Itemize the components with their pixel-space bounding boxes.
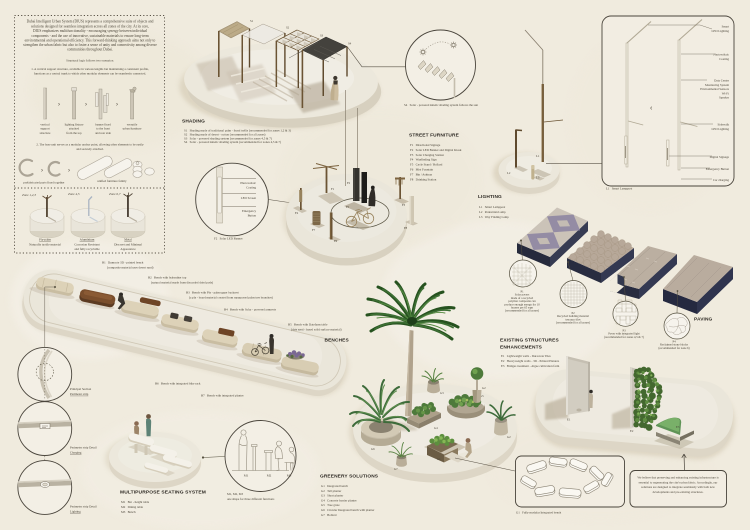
svg-text:F2: F2	[347, 181, 351, 185]
svg-text:F4 Wayfinding Sign: F4 Wayfinding Sign	[410, 158, 437, 162]
svg-text:LED Lighting: LED Lighting	[712, 127, 730, 131]
svg-text:ENHANCEMENTS: ENHANCEMENTS	[500, 345, 543, 351]
svg-text:G7 Bollard: G7 Bollard	[321, 513, 337, 517]
svg-text:one shape for three different: one shape for three different functions	[227, 497, 275, 501]
svg-text:F8: F8	[404, 226, 408, 230]
svg-text:Coating: Coating	[246, 185, 256, 189]
svg-text:Naturally tactile material: Naturally tactile material	[29, 242, 61, 246]
svg-text:prefabricated parts fixed toge: prefabricated parts fixed together	[23, 181, 64, 185]
svg-text:E2 Heavyweight walls - 3D -: E2 Heavyweight walls - 3D - Printed Plan…	[501, 359, 560, 363]
svg-text:Structural logic follows two s: Structural logic follows two scenarios:	[66, 59, 114, 63]
svg-text:and fully recyclable: and fully recyclable	[74, 247, 100, 251]
svg-text:G1 Fully modular Integrated: G1 Fully modular Integrated bench	[516, 511, 562, 515]
svg-text:(date seed - based solid surfa: (date seed - based solid surface materia…	[291, 327, 342, 331]
svg-text:G6 Circular Integrated bench: G6 Circular Integrated bench with plante…	[321, 508, 374, 512]
svg-text:S4: S4	[348, 42, 352, 46]
svg-text:F1 Directional Signage: F1 Directional Signage	[410, 143, 441, 147]
svg-text:BENCHES: BENCHES	[325, 338, 350, 344]
svg-text:DIUS emphasizes multifunctiona: DIUS emphasizes multifunctionality - enc…	[33, 29, 147, 33]
svg-text:Coating: Coating	[719, 57, 729, 61]
svg-text:(composite material uses deser: (composite material uses desert sand)	[107, 265, 153, 269]
svg-text:Aluminium: Aluminium	[80, 238, 95, 242]
svg-text:Appearance: Appearance	[120, 247, 136, 251]
svg-text:(natural material made from di: (natural material made from discarded dr…	[151, 280, 213, 284]
svg-text:G4 Concrete barrier planter: G4 Concrete barrier planter	[321, 498, 357, 502]
svg-text:E2: E2	[630, 429, 634, 433]
svg-text:G3: G3	[440, 391, 444, 395]
svg-text:›: ›	[41, 168, 43, 174]
svg-text:M1 Bar - height table: M1 Bar - height table	[121, 500, 150, 504]
svg-text:and securely attached.: and securely attached.	[76, 147, 104, 151]
svg-text:STREET FURNITURE: STREET FURNITURE	[409, 133, 460, 139]
svg-text:Car charging: Car charging	[713, 178, 729, 182]
svg-text:Lighting: Lighting	[70, 509, 81, 513]
svg-text:B3 Bench with Ply - palm upp: B3 Bench with Ply - palm upper backrest	[186, 291, 239, 295]
svg-text:›: ›	[116, 102, 118, 108]
svg-text:urban furniture: urban furniture	[123, 127, 142, 131]
svg-text:G5 Tree grate: G5 Tree grate	[321, 503, 340, 507]
svg-text:S4 Solar - powered kinetic s: S4 Solar - powered kinetic shading syste…	[404, 103, 478, 107]
svg-text:M3 Bench: M3 Bench	[121, 510, 136, 514]
svg-text:›: ›	[58, 102, 60, 108]
svg-text:from the top: from the top	[66, 131, 82, 135]
svg-text:G1: G1	[437, 457, 441, 461]
svg-text:B2 Bench with leabeather top: B2 Bench with leabeather top	[148, 276, 187, 280]
svg-text:Metal: Metal	[124, 238, 132, 242]
svg-text:Perimeter strip: Perimeter strip	[70, 392, 89, 396]
svg-text:L3 Way Finding Lamp: L3 Way Finding Lamp	[479, 215, 509, 219]
svg-text:F2 Solar LED Banner and Digi: F2 Solar LED Banner and Digital Kiosk	[410, 148, 462, 152]
svg-text:E3 Bridges treatment - Algae: E3 Bridges treatment - Algae cultivation…	[501, 364, 560, 368]
svg-text:Perimeter strip Detail: Perimeter strip Detail	[70, 446, 97, 450]
svg-text:L1: L1	[536, 154, 540, 158]
svg-text:developments and pre-existing: developments and pre-existing structures…	[653, 490, 704, 494]
svg-text:B7 Bench with integrated pla: B7 Bench with integrated planter	[201, 394, 244, 398]
svg-text:G1 Integrated bench: G1 Integrated bench	[321, 484, 348, 488]
svg-text:F7: F7	[312, 228, 316, 232]
svg-text:F2 Solar LED Banner: F2 Solar LED Banner	[214, 237, 243, 241]
svg-text:communities throughout Dubai.: communities throughout Dubai.	[67, 48, 113, 52]
svg-text:S3: S3	[320, 34, 324, 38]
svg-text:L1 Smart Lamppost: L1 Smart Lamppost	[479, 205, 505, 209]
svg-text:L2 Pedestrian Lamp: L2 Pedestrian Lamp	[479, 210, 506, 214]
svg-text:Corrosion Resistant: Corrosion Resistant	[74, 242, 99, 246]
svg-text:unified furniture family: unified furniture family	[97, 179, 127, 183]
svg-text:PAVING: PAVING	[694, 317, 713, 323]
svg-text:F5 Cycle Stand / Bollard: F5 Cycle Stand / Bollard	[410, 163, 443, 167]
svg-text:B5 Bench with Datefarm table: B5 Bench with Datefarm table	[288, 323, 328, 327]
svg-text:LED Screen: LED Screen	[241, 196, 257, 200]
svg-text:Speaker: Speaker	[719, 96, 729, 100]
svg-text:G7: G7	[394, 467, 398, 471]
svg-text:F3 Solar Charging Station: F3 Solar Charging Station	[410, 153, 444, 157]
svg-text:M1: M1	[244, 474, 249, 478]
svg-text:solutions are designed to inte: solutions are designed to integrate seam…	[641, 485, 716, 489]
svg-text:structure: structure	[40, 131, 51, 135]
svg-text:Dubai Intelligent Urban System: Dubai Intelligent Urban System (DIUS) re…	[27, 20, 154, 24]
svg-text:We believe that preserving and: We believe that preserving and enhancing…	[637, 476, 719, 480]
svg-text:F6: F6	[334, 239, 338, 243]
svg-text:functions as a central trunk t: functions as a central trunk to which ot…	[34, 72, 146, 76]
svg-text:and rear side: and rear side	[95, 131, 111, 135]
svg-text:M3: M3	[287, 474, 292, 478]
svg-text:F5: F5	[346, 205, 350, 209]
svg-text:Ply-palm: Ply-palm	[39, 238, 51, 242]
svg-text:Charging: Charging	[70, 450, 82, 454]
svg-text:F8 Drinking Station: F8 Drinking Station	[410, 177, 437, 181]
svg-text:B4 Bench with Solar - powere: B4 Bench with Solar - powered armrests	[224, 308, 277, 312]
svg-text:LED Lighting: LED Lighting	[712, 29, 730, 33]
svg-text:S1: S1	[250, 19, 254, 23]
svg-text:G6: G6	[371, 447, 375, 451]
svg-text:E1: E1	[567, 418, 571, 422]
svg-text:(a ply - board material create: (a ply - board material created from rep…	[189, 295, 273, 299]
svg-text:›: ›	[68, 168, 70, 174]
svg-text:Digital Signage: Digital Signage	[710, 155, 730, 159]
svg-text:F3: F3	[402, 203, 406, 207]
svg-text:GREENERY SOLUTIONS: GREENERY SOLUTIONS	[320, 474, 379, 480]
svg-text:F6 Mist Fountain: F6 Mist Fountain	[410, 168, 433, 172]
svg-text:G4: G4	[434, 426, 438, 430]
svg-text:Principal Section: Principal Section	[70, 387, 92, 391]
svg-text:(recommended for all zones): (recommended for all zones)	[505, 309, 539, 313]
svg-text:F4: F4	[295, 211, 299, 215]
svg-text:B6 Bench with integrated bik: B6 Bench with integrated bike rack	[155, 382, 201, 386]
svg-text:Emergency Button: Emergency Button	[706, 167, 730, 171]
svg-text:F1: F1	[331, 187, 335, 191]
svg-text:G2: G2	[482, 386, 486, 390]
svg-text:S2: S2	[286, 26, 290, 30]
svg-text:M2: M2	[267, 474, 272, 478]
svg-text:L2: L2	[507, 171, 511, 175]
svg-text:strengthen the urban fabric bu: strengthen the urban fabric but also to …	[23, 43, 157, 47]
svg-text:E3: E3	[676, 425, 680, 429]
svg-text:EXISTING STRUCTURES: EXISTING STRUCTURES	[500, 338, 559, 344]
svg-text:F7 Bin / Ashtray: F7 Bin / Ashtray	[410, 172, 433, 176]
svg-text:Discreet and Minimal: Discreet and Minimal	[114, 242, 142, 246]
svg-text:M2 Dining table: M2 Dining table	[121, 505, 144, 509]
svg-text:SHADING: SHADING	[182, 119, 205, 125]
svg-text:›: ›	[85, 102, 87, 108]
svg-text:L3: L3	[536, 176, 540, 180]
svg-text:MULTIPURPOSE SEATING SYSTEM: MULTIPURPOSE SEATING SYSTEM	[120, 490, 206, 496]
svg-text:LIGHTING: LIGHTING	[478, 194, 502, 200]
svg-text:Button: Button	[248, 213, 257, 217]
svg-text:G2: G2	[507, 435, 511, 439]
svg-text:environmental and operational: environmental and operational efficiency…	[25, 38, 156, 42]
svg-text:L1 Smart Lamppost: L1 Smart Lamppost	[606, 187, 632, 191]
svg-text:E1 Lightweight walls - Durac: E1 Lightweight walls - Duracrete Tiles	[501, 354, 552, 358]
svg-text:B1 Dumcote 3D - printed benc: B1 Dumcote 3D - printed bench	[102, 261, 144, 265]
svg-text:G3 Short planter: G3 Short planter	[321, 494, 343, 498]
svg-text:(recommended for all zones): (recommended for all zones)	[556, 321, 590, 325]
svg-text:G2 Tall planter: G2 Tall planter	[321, 489, 341, 493]
svg-text:(recommended for zone 6): (recommended for zone 6)	[658, 346, 689, 350]
svg-text:Perimeter strip Detail: Perimeter strip Detail	[70, 505, 97, 509]
